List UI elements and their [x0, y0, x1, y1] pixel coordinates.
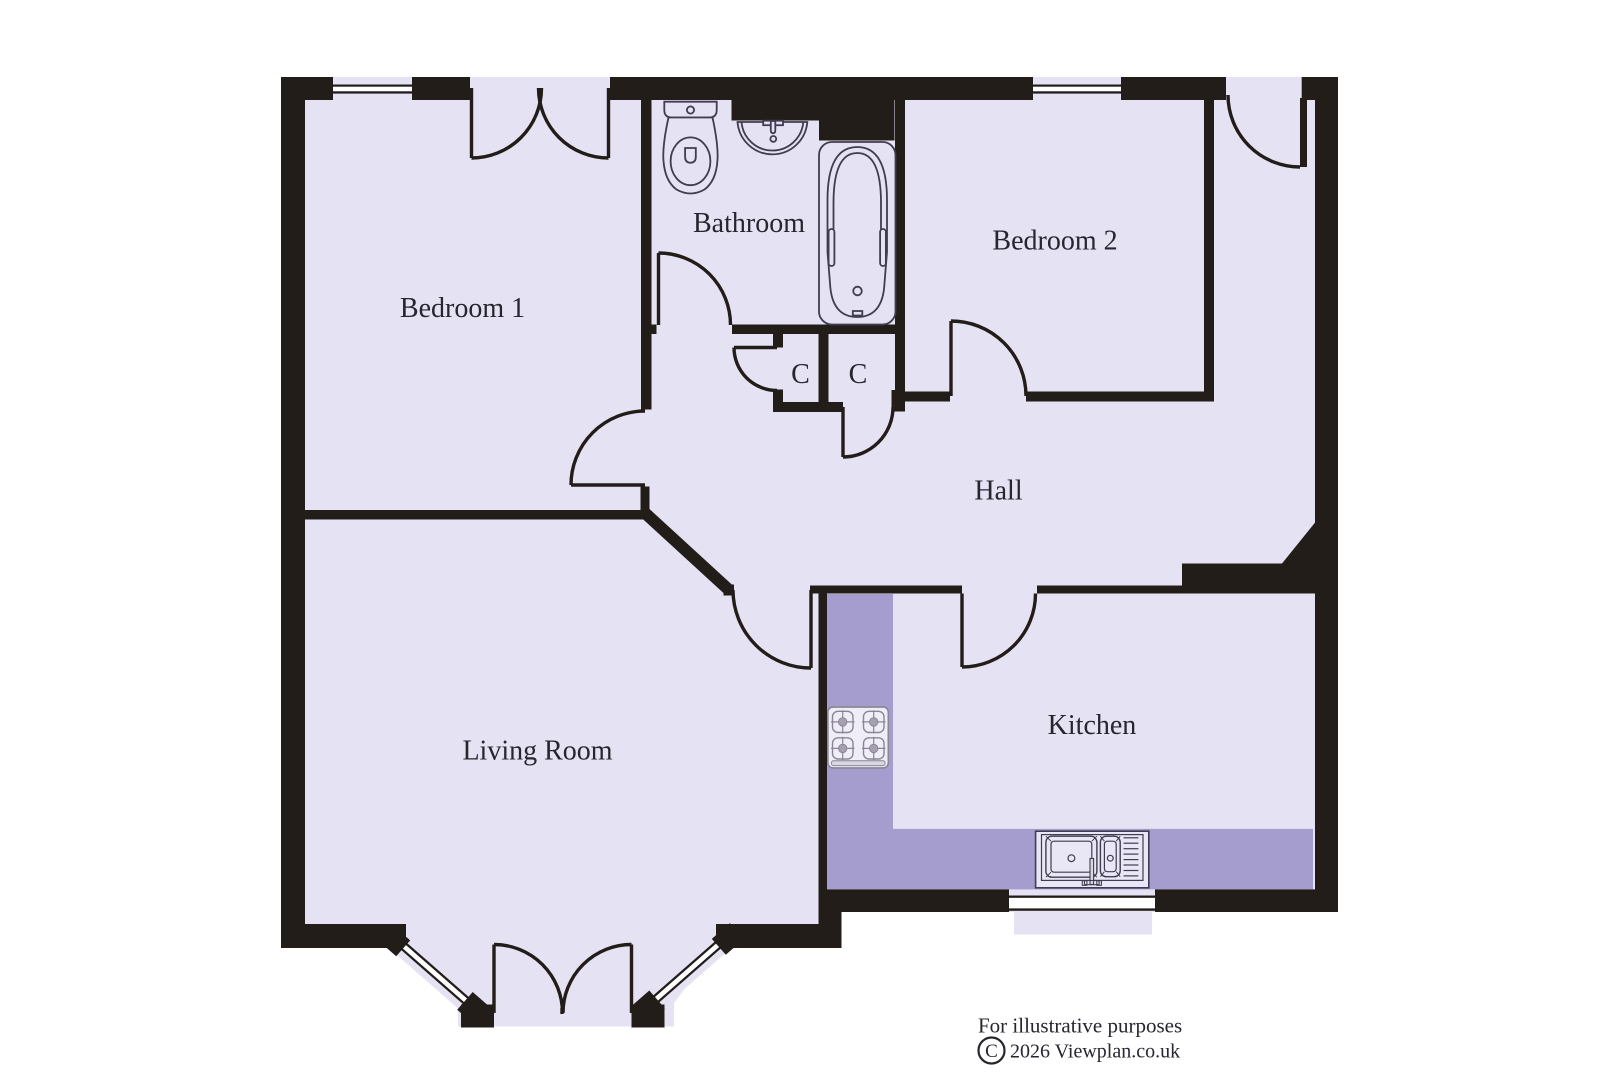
svg-text:2026 Viewplan.co.uk: 2026 Viewplan.co.uk: [1010, 1041, 1180, 1063]
svg-text:Kitchen: Kitchen: [1048, 710, 1137, 741]
svg-text:For illustrative purposes: For illustrative purposes: [978, 1014, 1182, 1038]
svg-text:Hall: Hall: [974, 476, 1022, 507]
svg-text:C: C: [849, 359, 868, 390]
svg-text:C: C: [791, 359, 810, 390]
svg-text:Bedroom 1: Bedroom 1: [400, 293, 525, 324]
svg-text:Bathroom: Bathroom: [693, 208, 805, 239]
svg-text:C: C: [985, 1041, 998, 1062]
svg-text:Living Room: Living Room: [462, 736, 612, 767]
svg-text:Bedroom 2: Bedroom 2: [992, 226, 1117, 257]
